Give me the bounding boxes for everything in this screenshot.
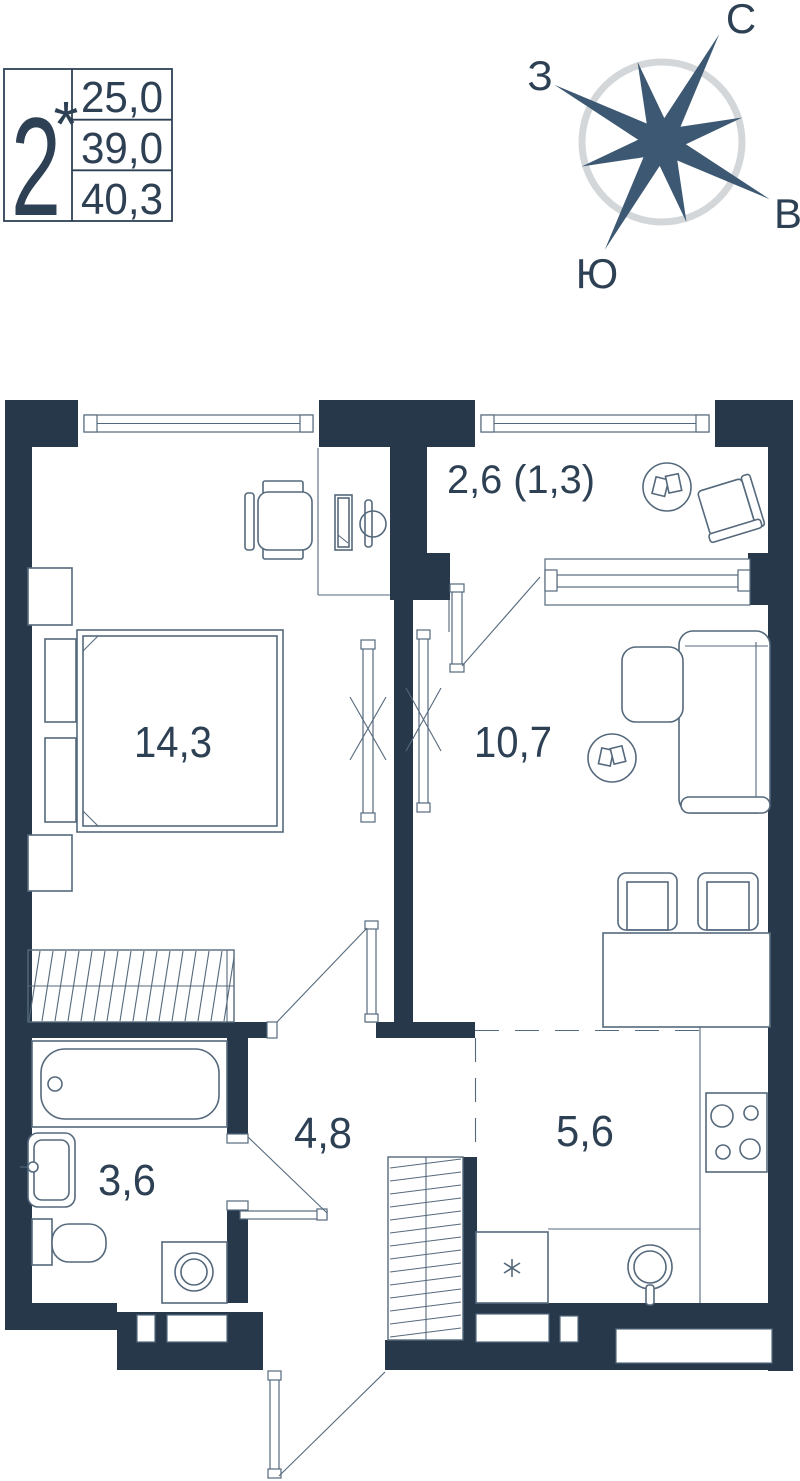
hallway-area-label: 4,8 <box>294 1109 352 1158</box>
balcony-door <box>449 577 540 672</box>
fridge <box>476 1232 548 1303</box>
living-furniture <box>406 630 770 1027</box>
compass-south-label: Ю <box>576 250 618 297</box>
sliding-wardrobe-bedroom <box>350 640 386 822</box>
legend-total-area: 39,0 <box>81 124 163 173</box>
bathroom-door-opening <box>227 1134 248 1210</box>
sink <box>20 1133 75 1207</box>
balcony-furniture <box>643 463 765 543</box>
bedroom-door-jamb <box>267 1022 277 1038</box>
compass-star-icon <box>554 34 769 249</box>
coffee-table <box>588 734 636 782</box>
hall-wardrobe-hatched <box>388 1157 463 1340</box>
kitchen-sink <box>628 1245 672 1305</box>
compass-west-label: З <box>527 52 552 99</box>
balcony-table <box>643 463 691 511</box>
balcony-inner-window <box>545 559 750 605</box>
floor-plan-page: 2 * 25,0 39,0 40,3 С З В Ю <box>0 0 800 1481</box>
legend-total-area-with-balcony: 40,3 <box>81 175 163 224</box>
legend-living-area: 25,0 <box>81 73 163 122</box>
compass-rose: С З В Ю <box>527 0 800 297</box>
mirror-stand <box>360 500 386 547</box>
balcony-armchair <box>695 474 766 543</box>
kitchen-fixtures <box>476 1093 767 1305</box>
entrance-door <box>268 1371 385 1478</box>
kitchen-window <box>616 1329 772 1363</box>
wardrobe-hatched <box>28 950 234 1022</box>
bathtub <box>32 1041 227 1127</box>
dining-table <box>603 933 770 1027</box>
nightstand <box>28 568 72 625</box>
vent-shaft <box>476 1314 549 1342</box>
compass-east-label: В <box>774 190 800 237</box>
living-area-label: 10,7 <box>474 718 552 767</box>
floor-plan-canvas: 2 * 25,0 39,0 40,3 С З В Ю <box>0 0 800 1481</box>
kitchen-area-label: 5,6 <box>556 1107 614 1156</box>
washing-machine <box>162 1242 227 1303</box>
dining-chair <box>618 873 677 930</box>
sofa <box>622 631 770 813</box>
balcony-area-label: 2,6 (1,3) <box>447 458 595 502</box>
dining-chair <box>698 873 758 930</box>
toilet <box>32 1219 106 1265</box>
hallway-furniture <box>268 1157 463 1478</box>
bedroom-door <box>277 921 378 1022</box>
vent-shaft <box>167 1315 227 1342</box>
bathroom-fixtures <box>20 1041 327 1303</box>
desk-chair <box>245 481 312 559</box>
pc-tower <box>335 495 352 550</box>
bedroom-area-label: 14,3 <box>134 718 212 767</box>
area-legend: 2 * 25,0 39,0 40,3 <box>4 69 172 245</box>
stove <box>706 1093 767 1172</box>
bedroom-window <box>78 400 319 447</box>
vent-shaft <box>137 1315 155 1342</box>
balcony-window <box>475 400 715 447</box>
legend-rooms-note: * <box>54 88 79 160</box>
compass-north-label: С <box>726 0 756 42</box>
nightstand <box>28 835 72 891</box>
bathroom-area-label: 3,6 <box>98 1156 156 1205</box>
entrance-opening <box>270 1343 385 1371</box>
vent-shaft <box>560 1316 578 1342</box>
